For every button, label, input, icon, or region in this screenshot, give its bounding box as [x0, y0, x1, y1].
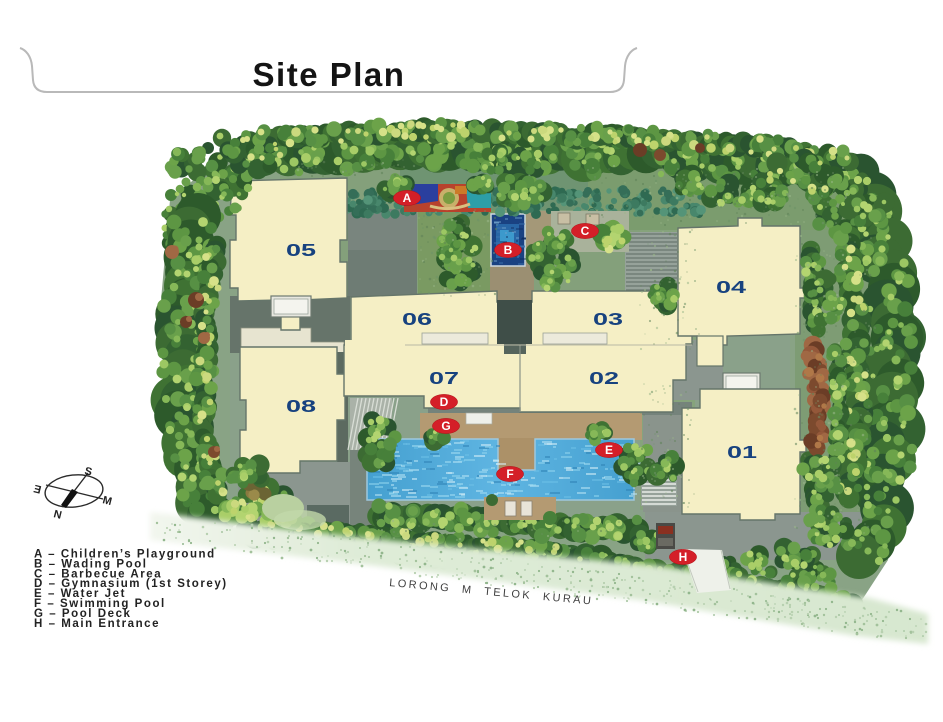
svg-text:B: B — [504, 243, 513, 257]
svg-text:C: C — [581, 224, 590, 238]
svg-text:H – Main Entrance: H – Main Entrance — [34, 618, 160, 630]
svg-text:03: 03 — [593, 309, 623, 329]
svg-text:G: G — [441, 419, 450, 433]
svg-text:08: 08 — [286, 396, 316, 416]
svg-text:F: F — [506, 467, 513, 481]
svg-text:01: 01 — [727, 442, 757, 462]
svg-text:04: 04 — [716, 277, 746, 297]
svg-text:H: H — [679, 550, 688, 564]
svg-text:D: D — [440, 395, 449, 409]
svg-text:Site Plan: Site Plan — [253, 56, 406, 93]
svg-text:07: 07 — [429, 368, 459, 388]
svg-text:06: 06 — [402, 309, 432, 329]
svg-text:02: 02 — [589, 368, 619, 388]
svg-text:05: 05 — [286, 240, 316, 260]
svg-text:A: A — [403, 191, 412, 205]
svg-text:E: E — [605, 443, 613, 457]
